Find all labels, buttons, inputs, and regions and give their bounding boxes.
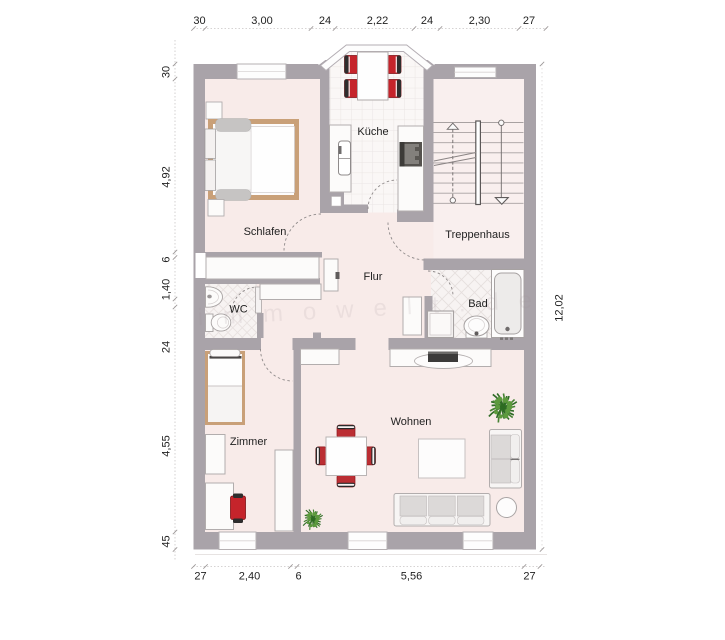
svg-text:Treppenhaus: Treppenhaus	[445, 229, 510, 241]
svg-text:WC: WC	[229, 304, 247, 316]
svg-text:Küche: Küche	[357, 126, 388, 138]
svg-text:2,22: 2,22	[367, 15, 388, 27]
svg-text:4,92: 4,92	[160, 166, 172, 187]
svg-text:27: 27	[523, 15, 535, 27]
svg-text:2,30: 2,30	[469, 15, 490, 27]
svg-text:6: 6	[295, 571, 301, 583]
svg-text:Zimmer: Zimmer	[230, 436, 268, 448]
svg-text:6: 6	[160, 256, 172, 262]
svg-text:24: 24	[421, 15, 433, 27]
svg-text:24: 24	[160, 341, 172, 353]
svg-text:Wohnen: Wohnen	[391, 416, 432, 428]
svg-text:12,02: 12,02	[553, 294, 565, 322]
svg-text:2,40: 2,40	[239, 571, 260, 583]
svg-text:Schlafen: Schlafen	[244, 226, 287, 238]
svg-text:5,56: 5,56	[401, 571, 422, 583]
svg-text:27: 27	[194, 571, 206, 583]
svg-text:Bad: Bad	[468, 298, 488, 310]
svg-text:27: 27	[523, 571, 535, 583]
svg-text:45: 45	[160, 535, 172, 547]
svg-text:24: 24	[319, 15, 331, 27]
svg-text:30: 30	[160, 66, 172, 78]
svg-text:Flur: Flur	[364, 271, 383, 283]
svg-text:30: 30	[193, 15, 205, 27]
svg-text:3,00: 3,00	[251, 15, 272, 27]
svg-text:1,40: 1,40	[160, 279, 172, 300]
svg-text:4,55: 4,55	[160, 435, 172, 456]
